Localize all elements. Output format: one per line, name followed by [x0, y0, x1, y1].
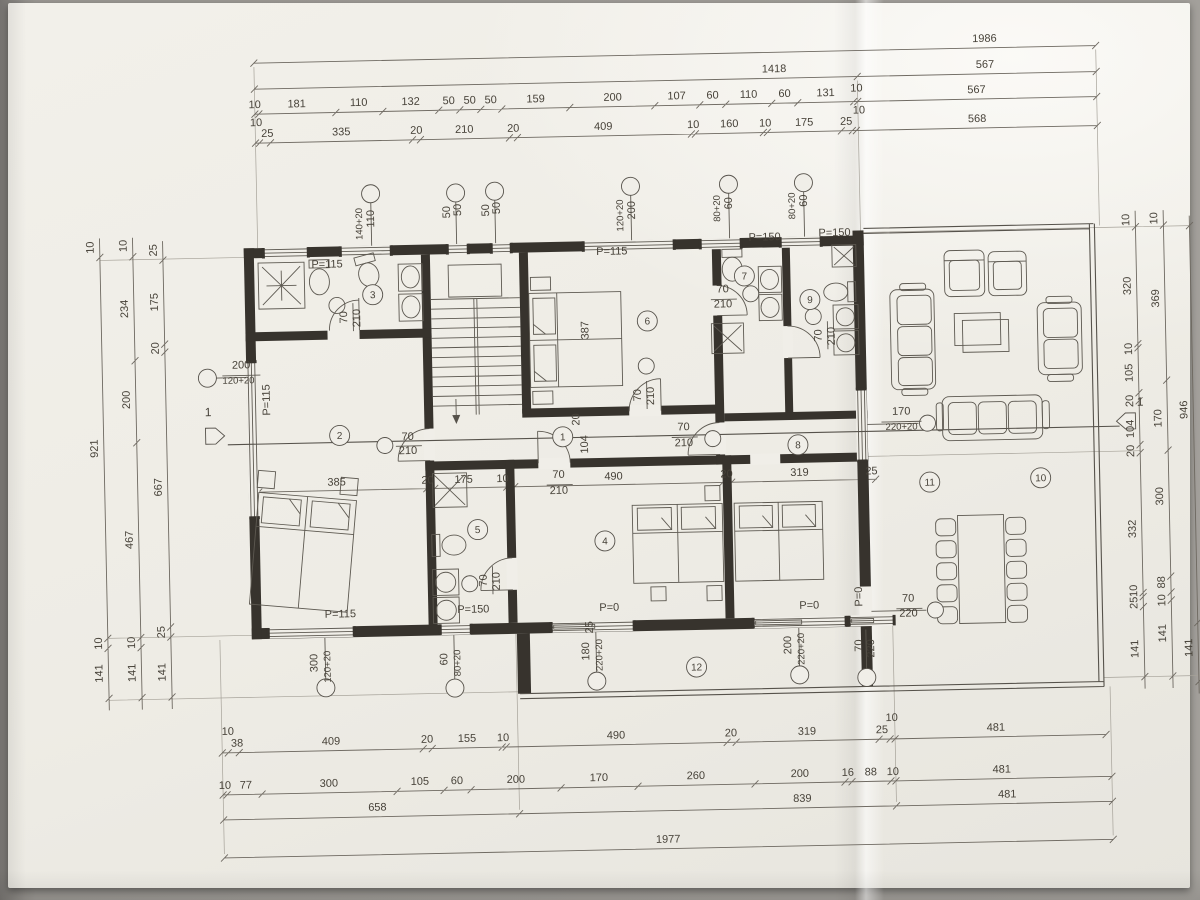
dim-label: 385 — [327, 476, 346, 488]
dim-label: 88 — [1156, 576, 1168, 588]
double-bed — [528, 276, 623, 405]
dim-label: 70 — [552, 469, 564, 481]
dim-label: 210 — [675, 437, 694, 449]
dim-label: 10 — [887, 766, 899, 778]
dim-label: 104 — [1124, 420, 1136, 439]
dim-label: 50 — [491, 202, 503, 214]
dim-label: 70 — [478, 574, 490, 586]
dim-label: 10 — [850, 82, 862, 94]
dim-label: 10 — [687, 119, 699, 131]
room-number: 3 — [362, 285, 382, 305]
dim-label: 25 — [840, 116, 852, 128]
staircase — [430, 264, 522, 425]
dim-label: 10 — [497, 732, 509, 744]
nightstand — [651, 587, 666, 601]
dim-label: 60 — [778, 88, 790, 100]
dim-label: 200 — [603, 91, 622, 103]
photographed-blueprint: 1986141856710181110132505050159200107601… — [0, 0, 1200, 900]
dim-label: 1418 — [762, 63, 787, 76]
dim-label: 300 — [320, 778, 339, 790]
svg-text:6: 6 — [644, 316, 650, 327]
toilet-icon — [354, 253, 382, 289]
room-number: 7 — [734, 266, 754, 286]
dim-label: 210 — [550, 485, 569, 497]
svg-text:1: 1 — [560, 432, 566, 443]
svg-text:11: 11 — [924, 477, 935, 488]
dim-label: 25 — [261, 128, 273, 140]
dim-label: 160 — [720, 118, 739, 130]
dim-label: 567 — [976, 59, 995, 71]
dim-label: 80+20 — [452, 650, 464, 677]
dim-label: 70 — [716, 283, 728, 295]
dim-label: 10 — [853, 104, 865, 116]
svg-text:3: 3 — [370, 290, 376, 301]
dim-label: 481 — [998, 788, 1017, 800]
dim-label: 20 — [1124, 395, 1136, 407]
dim-label: 319 — [790, 467, 809, 479]
dim-label: 181 — [287, 98, 306, 110]
dim-label: P=115 — [261, 384, 274, 416]
nightstand — [533, 391, 553, 404]
dim-label: 70 — [677, 421, 689, 433]
dim-label: 110 — [740, 89, 758, 101]
dim-label: 10 — [85, 241, 97, 253]
dim-label: 105 — [1123, 364, 1135, 383]
dim-label: 20 — [150, 342, 162, 354]
dim-label: 220 — [899, 607, 918, 619]
dim-label: 387 — [579, 321, 591, 340]
dim-label: 210 — [714, 298, 733, 310]
dim-label: 332 — [1127, 520, 1139, 539]
dim-label: 200 — [782, 636, 794, 655]
room-number: 2 — [329, 425, 349, 445]
dim-label: 490 — [604, 471, 623, 483]
dim-label: P=0 — [853, 587, 865, 607]
dim-label: 10 — [248, 99, 260, 111]
dim-label: P=115 — [325, 608, 357, 621]
dim-label: 220+20 — [885, 421, 917, 433]
coffee-table — [954, 312, 1009, 352]
room-number: 9 — [800, 289, 820, 309]
svg-text:4: 4 — [602, 536, 608, 547]
dim-label: 120+20 — [615, 199, 627, 231]
dim-label: 10 — [222, 726, 234, 738]
dim-label: 70 — [632, 389, 644, 401]
room-number: 5 — [467, 519, 487, 539]
dim-label: 175 — [454, 474, 473, 486]
shower-icon — [832, 245, 856, 267]
dim-label: 170 — [892, 405, 911, 417]
dim-label: 481 — [987, 722, 1006, 734]
dim-label: 25 — [148, 244, 160, 256]
dim-label: 25 — [584, 621, 596, 633]
sink-icon — [758, 266, 782, 292]
dim-label: 25 — [156, 626, 168, 638]
dim-label: 481 — [992, 763, 1011, 775]
dim-label: 140+20 — [354, 208, 366, 240]
dim-label: 60 — [438, 653, 450, 665]
dim-label: 70 — [902, 592, 914, 604]
dim-label: P=150 — [748, 231, 780, 244]
dim-label: 80+20 — [787, 192, 799, 219]
dim-label: 60 — [451, 775, 463, 787]
dim-label: 20 — [421, 474, 433, 486]
room-number: 1 — [553, 427, 573, 447]
dim-label: 70 — [401, 431, 413, 443]
dim-label: 320 — [1121, 277, 1133, 296]
dim-label: 409 — [594, 121, 613, 133]
sink-icon — [398, 264, 423, 291]
dim-label: 319 — [798, 726, 817, 738]
dim-label: 200 — [626, 201, 638, 220]
dim-label: 38 — [231, 738, 243, 750]
dim-label: P=0 — [599, 602, 619, 614]
dim-label: 210 — [399, 445, 418, 457]
dim-label: 20 — [725, 727, 737, 739]
dim-label: 120+20 — [222, 375, 254, 387]
armchair — [988, 251, 1027, 296]
dim-label: 141 — [126, 664, 138, 683]
dim-label: 20 — [421, 734, 433, 746]
dim-label: 25 — [865, 465, 877, 477]
dim-label: 141 — [1129, 640, 1141, 659]
dim-label: 10 — [759, 117, 771, 129]
dim-label: 10 — [1120, 214, 1132, 226]
svg-text:7: 7 — [742, 271, 748, 282]
dim-label: 200 — [121, 391, 133, 410]
svg-text:9: 9 — [807, 295, 813, 306]
floor-drain-icon — [805, 308, 821, 324]
dim-label: 16 — [842, 767, 854, 779]
room-number: 11 — [920, 472, 940, 492]
dim-label: 220+20 — [594, 639, 606, 671]
dim-label: 132 — [401, 96, 420, 108]
dim-label: P=150 — [818, 227, 850, 240]
dim-label: 50 — [484, 94, 496, 106]
section-arrow-left — [205, 428, 224, 444]
dim-label: 175 — [795, 116, 814, 128]
sink-icon — [759, 294, 783, 320]
dim-label: 131 — [816, 87, 835, 99]
room-number: 6 — [637, 311, 657, 331]
dim-label: 25 — [1128, 597, 1140, 609]
dim-label: 234 — [119, 300, 131, 319]
dim-label: 105 — [411, 776, 430, 788]
dim-label: 141 — [1183, 638, 1195, 657]
dim-label: 180 — [580, 642, 592, 661]
dim-label: 210 — [455, 124, 474, 136]
dim-label: 60 — [706, 89, 718, 101]
dim-label: 1 — [205, 405, 212, 419]
dim-label: 80+20 — [712, 195, 724, 222]
room-number: 12 — [686, 657, 706, 677]
dim-label: 467 — [124, 531, 136, 550]
dim-label: 170 — [590, 772, 609, 784]
dim-label: 667 — [152, 478, 164, 497]
dim-label: 220 — [865, 639, 877, 658]
dim-label: 88 — [865, 766, 877, 778]
dim-label: 946 — [1178, 400, 1190, 419]
dim-label: P=115 — [311, 258, 343, 271]
dim-label: 1 — [1137, 395, 1144, 409]
dim-label: 50 — [441, 206, 453, 218]
dim-label: 10 — [1156, 594, 1168, 606]
dim-label: 200 — [232, 359, 251, 371]
dim-label: 409 — [322, 736, 341, 748]
dim-label: 20 — [507, 123, 519, 135]
toilet-icon — [824, 282, 856, 303]
shower-icon — [258, 262, 305, 309]
dim-label: 10 — [117, 240, 129, 252]
dim-label: 10 — [1123, 343, 1135, 355]
svg-text:5: 5 — [475, 525, 481, 536]
dim-label: 658 — [368, 802, 387, 814]
dim-label: 300 — [1154, 487, 1166, 506]
dim-label: 141 — [93, 664, 105, 683]
dim-label: 159 — [526, 93, 545, 105]
dim-label: 70 — [853, 639, 865, 651]
nightstand — [705, 485, 720, 500]
sofa — [936, 395, 1050, 441]
dim-label: 10 — [885, 712, 897, 724]
dim-label: 70 — [813, 329, 825, 341]
dim-label: 170 — [1152, 409, 1164, 428]
sofa — [890, 283, 936, 396]
dim-label: 50 — [452, 204, 464, 216]
dim-label: 120+20 — [322, 651, 334, 683]
sink-icon — [399, 294, 424, 321]
extension-lines — [96, 48, 1200, 857]
dim-label: 70 — [338, 311, 350, 323]
dim-label: 200 — [791, 768, 810, 780]
dim-label: 568 — [968, 113, 987, 125]
dim-label: 141 — [1157, 624, 1169, 643]
dim-label: 210 — [645, 387, 657, 406]
dim-label: 104 — [579, 435, 591, 454]
dim-label: 210 — [825, 327, 837, 346]
dim-label: 110 — [350, 97, 368, 109]
dim-label: 60 — [723, 197, 735, 209]
dim-label: 10 — [219, 780, 231, 792]
svg-text:2: 2 — [337, 431, 343, 442]
dim-label: 175 — [149, 293, 161, 312]
dim-label: 567 — [967, 84, 986, 96]
dim-label: 1986 — [972, 33, 997, 46]
dining-table — [957, 515, 1005, 624]
dim-label: 107 — [667, 90, 686, 102]
dim-label: 25 — [876, 724, 888, 736]
dim-label: 921 — [89, 439, 101, 458]
dim-label: 50 — [463, 95, 475, 107]
toilet-icon — [432, 534, 466, 557]
dim-label: 10 — [496, 473, 508, 485]
dim-label: 60 — [798, 194, 810, 206]
dim-label: 10 — [1148, 212, 1160, 224]
floor-plan-drawing: 1986141856710181110132505050159200107601… — [0, 0, 1200, 900]
armchair — [944, 250, 985, 297]
room-number: 8 — [788, 435, 808, 455]
nightstand — [707, 585, 722, 600]
dim-label: 10 — [1128, 585, 1140, 597]
sofa — [1037, 296, 1083, 382]
nightstand — [257, 470, 275, 488]
dim-label: 210 — [491, 572, 503, 591]
nightstand — [530, 277, 550, 290]
dim-label: P=115 — [596, 245, 628, 258]
dim-label: 110 — [365, 210, 377, 228]
dim-label: 10 — [93, 637, 105, 649]
double-bed — [632, 503, 724, 583]
dim-label: 300 — [308, 654, 320, 673]
dim-label: 50 — [442, 95, 454, 107]
dim-label: 335 — [332, 126, 351, 138]
dim-label: 369 — [1150, 289, 1162, 308]
dim-label: P=0 — [799, 599, 819, 611]
dim-label: 220+20 — [796, 633, 808, 665]
dim-label: 141 — [156, 663, 168, 682]
dim-label: 155 — [458, 733, 477, 745]
dim-label: 839 — [793, 793, 812, 805]
dim-label: 20 — [410, 125, 422, 137]
svg-text:12: 12 — [691, 662, 703, 673]
dining-chairs — [936, 517, 1028, 624]
dim-label: 50 — [480, 204, 492, 216]
dim-label: P=150 — [457, 603, 489, 616]
dim-label: 20 — [570, 413, 582, 425]
room-number: 10 — [1030, 468, 1050, 488]
dim-label: 200 — [507, 774, 526, 786]
dim-label: 20 — [720, 468, 732, 480]
dim-label: 1977 — [656, 833, 681, 846]
svg-text:10: 10 — [1035, 473, 1047, 484]
svg-text:8: 8 — [795, 440, 801, 451]
dim-label: 490 — [607, 730, 626, 742]
dim-label: 10 — [126, 637, 138, 649]
dim-label: 260 — [687, 770, 706, 782]
room-number: 4 — [595, 531, 615, 551]
double-bed — [734, 501, 824, 581]
dim-label: 77 — [240, 779, 252, 791]
dim-label: 20 — [1125, 445, 1137, 457]
dim-label: 210 — [351, 309, 363, 328]
